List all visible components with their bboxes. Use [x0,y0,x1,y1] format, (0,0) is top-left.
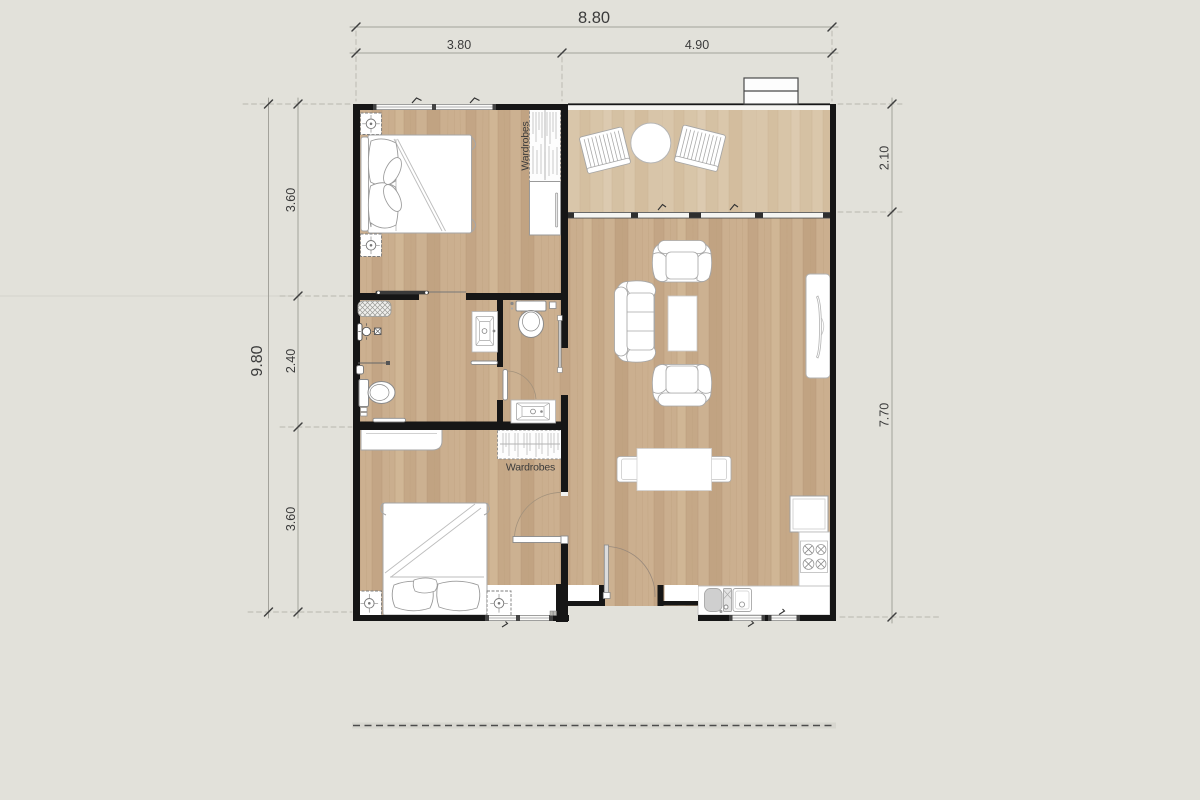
svg-text:3.60: 3.60 [284,507,298,531]
svg-text:8.80: 8.80 [578,9,610,27]
svg-text:2.10: 2.10 [878,146,892,170]
svg-text:Wardrobes: Wardrobes [520,121,532,170]
svg-text:4.90: 4.90 [685,38,709,52]
svg-text:3.60: 3.60 [284,188,298,212]
svg-text:3.80: 3.80 [447,38,471,52]
svg-text:Wardrobes: Wardrobes [506,462,555,474]
svg-text:9.80: 9.80 [249,345,266,376]
svg-text:7.70: 7.70 [878,403,892,427]
svg-text:2.40: 2.40 [284,349,298,373]
